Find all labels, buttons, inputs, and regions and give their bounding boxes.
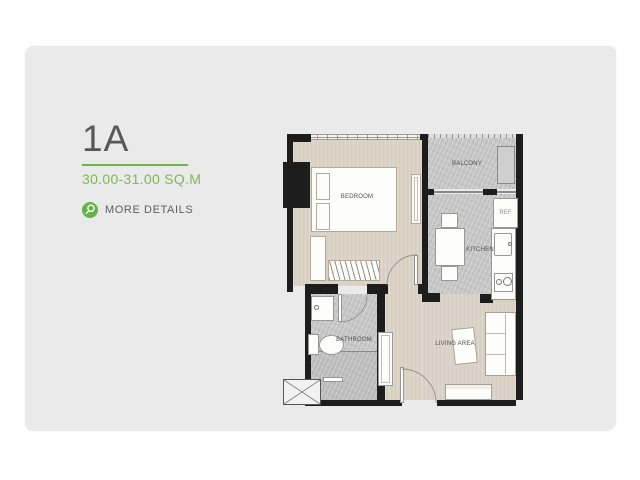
accent-underline	[82, 164, 188, 166]
unit-area-range: 30.00-31.00 SQ.M	[82, 171, 201, 187]
bedroom-label: BEDROOM	[341, 194, 373, 200]
more-details-label[interactable]: MORE DETAILS	[105, 204, 193, 216]
living-area-label: LIVING AREA	[435, 341, 475, 347]
kitchen-label: KITCHEN	[466, 247, 494, 253]
door-swing-overlay	[283, 134, 523, 406]
unit-info-panel: 1A 30.00-31.00 SQ.M MORE DETAILS	[82, 120, 201, 218]
search-icon[interactable]	[82, 202, 98, 218]
unit-card: 1A 30.00-31.00 SQ.M MORE DETAILS	[25, 46, 616, 431]
floor-plan: REF BEDROOM BALCONY KITCHEN BATHROOM LIV…	[283, 134, 523, 406]
bathroom-label: BATHROOM	[336, 337, 372, 343]
more-details-button[interactable]: MORE DETAILS	[82, 202, 201, 218]
unit-title: 1A	[82, 120, 201, 157]
balcony-label: BALCONY	[452, 161, 482, 167]
